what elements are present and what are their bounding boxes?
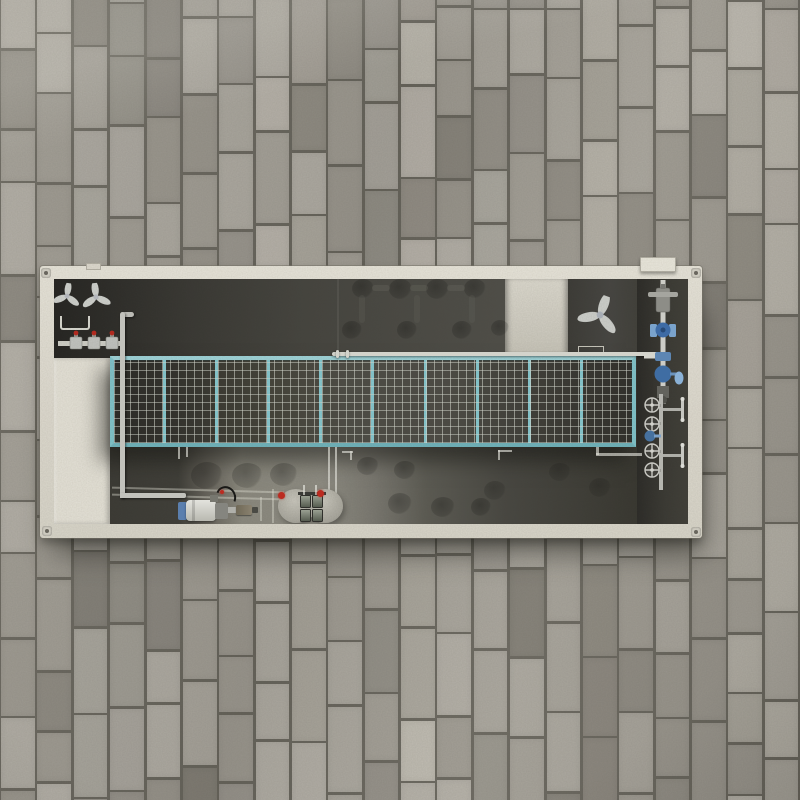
blue-valve-assembly [644,280,688,404]
walkway-panel [479,360,531,443]
floor-pipe [120,493,186,498]
tank-top [388,493,412,514]
corner-casting [691,268,701,278]
drop-bracket [498,450,512,452]
tank-connector [372,285,390,291]
pump-indicator [220,490,224,494]
walkway-panel [322,360,374,443]
tank-top [491,320,509,336]
tank-top [232,463,263,488]
walkway-panel [374,360,426,443]
drop-pipe [328,447,330,493]
drop-pipe [335,447,337,493]
tank-connector [447,285,465,291]
junction-box [210,495,218,502]
tank-connector [469,295,475,323]
tank-connector [410,285,428,291]
skid-rail [272,489,274,523]
scene [0,0,800,800]
container-unit [40,266,702,538]
skylight-band [505,279,568,358]
walkway-panel [427,360,479,443]
filter-canister [300,509,311,522]
pipe-flange [346,350,349,358]
walkway-panel [218,360,270,443]
tank-top [589,478,611,497]
tank-top [431,497,455,517]
tank-top [342,321,362,339]
filter-canister [312,509,323,522]
riser-pipe [120,312,125,498]
pad-indicator [278,492,285,499]
drop-bracket [350,451,352,460]
tank-top [389,279,412,299]
tank-top [357,457,379,475]
tank-top [394,461,416,479]
walkway-panel [270,360,322,443]
tank-top [270,463,298,486]
tank-top [191,462,223,489]
walkway-leg [186,447,188,457]
tank-connector [359,295,365,323]
roof-vent-box [640,257,676,272]
walkway-panel [166,360,218,443]
filter-canister [312,495,323,508]
corner-casting [41,268,51,278]
container-interior [54,279,688,524]
valve-manifold [640,394,688,490]
drop-bracket [498,450,500,460]
tank-connector [414,295,420,323]
ceiling-fan-small [54,281,82,310]
walkway-panel [531,360,583,443]
pump-coupling [236,505,252,515]
feeder-pipe [596,453,642,456]
tank-top [464,279,486,298]
filter-canister [300,495,311,508]
canister-stem [303,485,305,495]
wall-seam [337,279,339,356]
roof-tab [86,263,101,270]
header-pipe [332,352,662,357]
corner-casting [691,527,701,537]
tank-top [397,321,417,339]
tank-top [471,498,491,516]
pipe-loop [60,316,90,330]
tank-top [484,481,506,500]
walkway-grating [110,356,636,447]
pump-band [192,500,195,521]
pump-body [186,500,216,521]
pad-indicator [317,490,324,497]
inlet-valve-row [56,330,140,358]
tank-top [452,321,472,339]
pump-end [252,507,258,513]
ceiling-fan-small [81,282,112,313]
pipe-flange [336,350,339,358]
walkway-panel [583,360,632,443]
walkway-leg [178,447,180,459]
left-roof-band [54,358,110,524]
tank-top [426,279,449,299]
skid-rail [260,497,262,521]
tank-top [549,463,571,481]
corner-casting [42,526,52,536]
